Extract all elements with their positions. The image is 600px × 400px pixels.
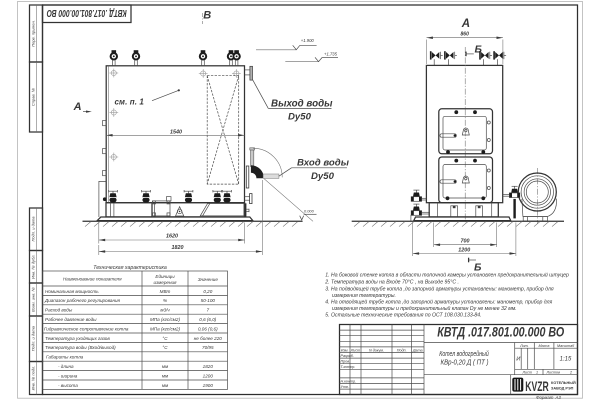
svg-text:Dy50: Dy50	[288, 111, 312, 122]
svg-text:Изм.: Изм.	[341, 348, 349, 352]
svg-text:Листов: Листов	[546, 371, 561, 375]
svg-text:мм: мм	[162, 383, 169, 388]
svg-text:Перв. примен.: Перв. примен.	[31, 20, 36, 47]
svg-text:1900: 1900	[203, 383, 214, 388]
svg-text:Инв. № подл.: Инв. № подл.	[31, 366, 36, 391]
svg-text:Взам. инв. №: Взам. инв. №	[31, 286, 36, 311]
svg-text:1540: 1540	[170, 129, 182, 135]
svg-text:Dy50: Dy50	[311, 171, 335, 182]
svg-text:4. На отводящей трубе котла ,: 4. На отводящей трубе котла ,до запорной…	[325, 298, 552, 305]
svg-text:Лит.: Лит.	[519, 344, 529, 348]
svg-text:Температура уходящих газов: Температура уходящих газов	[45, 336, 110, 341]
svg-text:70/95: 70/95	[202, 345, 214, 350]
svg-text:7: 7	[207, 308, 210, 313]
svg-text:%: %	[163, 298, 167, 303]
svg-text:МВт: МВт	[160, 289, 171, 294]
svg-text:°С: °С	[162, 336, 168, 341]
svg-text:1620: 1620	[166, 234, 178, 240]
svg-text:Лист: Лист	[350, 348, 361, 352]
svg-text:Разраб.: Разраб.	[341, 354, 354, 358]
svg-text:2: 2	[569, 371, 572, 375]
svg-text:измерения температуры.: измерения температуры.	[332, 293, 396, 299]
svg-text:Формат: Формат	[536, 395, 554, 400]
svg-text:КВТД .017.801.00.000 ВО: КВТД .017.801.00.000 ВО	[437, 325, 564, 340]
svg-text:- длина: - длина	[58, 364, 74, 369]
svg-text:мм: мм	[162, 364, 169, 369]
svg-text:Значение: Значение	[198, 277, 219, 282]
svg-text:860: 860	[461, 32, 470, 38]
svg-text:- ширина: - ширина	[58, 373, 78, 378]
svg-text:Подп. и дата: Подп. и дата	[31, 216, 36, 242]
svg-text:Котел водогрейный: Котел водогрейный	[439, 350, 489, 358]
svg-text:Расход воды: Расход воды	[45, 308, 73, 313]
svg-text:Н.контр.: Н.контр.	[341, 379, 357, 383]
svg-text:1200: 1200	[458, 247, 470, 253]
svg-text:МПа (кгс/см2): МПа (кгс/см2)	[150, 326, 180, 331]
svg-text:Инв. № дубл.: Инв. № дубл.	[31, 254, 36, 279]
svg-text:не более 220: не более 220	[194, 336, 222, 341]
svg-text:Справ. №: Справ. №	[31, 87, 36, 106]
svg-text:Габариты котла: Габариты котла	[46, 355, 84, 360]
svg-text:1820: 1820	[203, 364, 214, 369]
svg-text:Вход воды: Вход воды	[297, 158, 350, 169]
svg-text:1820: 1820	[172, 245, 184, 251]
svg-text:Выход воды: Выход воды	[271, 99, 333, 110]
svg-text:700: 700	[461, 239, 470, 245]
svg-text:N докум.: N докум.	[369, 348, 384, 352]
svg-text:м3/ч: м3/ч	[160, 308, 170, 313]
svg-text:Гидравлическое сопротивление к: Гидравлическое сопротивление котла	[44, 326, 129, 331]
svg-text:Т.контр.: Т.контр.	[341, 365, 356, 369]
svg-text:0,06 (0,6): 0,06 (0,6)	[198, 326, 218, 331]
svg-text:В: В	[203, 9, 211, 21]
svg-text:Подп.: Подп.	[397, 348, 407, 352]
svg-text:Лист: Лист	[522, 371, 533, 375]
svg-text:см. п. 1: см. п. 1	[115, 98, 145, 107]
svg-text:+1.735: +1.735	[324, 51, 338, 56]
svg-text:Номинальная мощность: Номинальная мощность	[45, 289, 99, 294]
svg-text:1:15: 1:15	[560, 356, 572, 362]
svg-text:Масштаб: Масштаб	[557, 344, 575, 348]
svg-text:0,20: 0,20	[203, 289, 212, 294]
svg-text:Температура воды (Вход/выход): Температура воды (Вход/выход)	[45, 345, 116, 350]
svg-text:Масса: Масса	[539, 344, 550, 348]
svg-text:Единицы: Единицы	[155, 274, 175, 279]
svg-text:Диапазон рабочего регулировани: Диапазон рабочего регулирования	[44, 298, 121, 303]
svg-text:Техническая характеристика: Техническая характеристика	[93, 265, 167, 271]
svg-text:А: А	[461, 18, 470, 30]
svg-text:мм: мм	[162, 373, 169, 378]
svg-text:1200: 1200	[203, 373, 214, 378]
svg-text:0.000: 0.000	[304, 209, 315, 214]
svg-text:КВТД .017.801.00.000 ВО: КВТД .017.801.00.000 ВО	[47, 7, 127, 18]
svg-text:Дата: Дата	[412, 348, 423, 352]
svg-text:Утв.: Утв.	[341, 385, 349, 389]
svg-text:KVZR: KVZR	[525, 379, 549, 394]
svg-text:0,6 (6,0): 0,6 (6,0)	[199, 317, 217, 322]
svg-text:°С: °С	[162, 345, 168, 350]
svg-text:+1.900: +1.900	[301, 38, 315, 43]
svg-text:А: А	[73, 101, 82, 113]
svg-text:1: 1	[536, 371, 538, 375]
svg-text:- высота: - высота	[58, 383, 78, 388]
svg-text:А3: А3	[555, 395, 562, 400]
svg-text:2. Температура воды на Входе: 2. Температура воды на Входе 70°С , на В…	[324, 279, 459, 285]
svg-text:КВр-0,20 Д ( ПТ ): КВр-0,20 Д ( ПТ )	[441, 360, 489, 367]
svg-text:3. На подводящей трубе котла: 3. На подводящей трубе котла ,до запорно…	[325, 285, 554, 292]
svg-text:50-100: 50-100	[201, 298, 216, 303]
svg-text:Пров.: Пров.	[341, 360, 351, 364]
svg-text:измерения: измерения	[154, 280, 178, 285]
svg-text:1. На боковой стенке котла в: 1. На боковой стенке котла в области топ…	[325, 271, 569, 278]
svg-text:МПа (кгс/см2): МПа (кгс/см2)	[150, 317, 180, 322]
svg-text:ЗАВОД РЭП: ЗАВОД РЭП	[551, 387, 574, 391]
svg-text:5. Остальные технические треб: 5. Остальные технические требования по О…	[325, 312, 481, 318]
svg-text:Рабочее давление воды: Рабочее давление воды	[45, 317, 97, 322]
svg-text:измерения температуры и предох: измерения температуры и предохранительны…	[332, 305, 517, 312]
svg-text:Подп. и дата: Подп. и дата	[31, 325, 36, 351]
svg-text:Наименование показателя: Наименование показателя	[63, 276, 122, 281]
svg-text:КОТЕЛЬНЫЙ: КОТЕЛЬНЫЙ	[551, 381, 576, 385]
